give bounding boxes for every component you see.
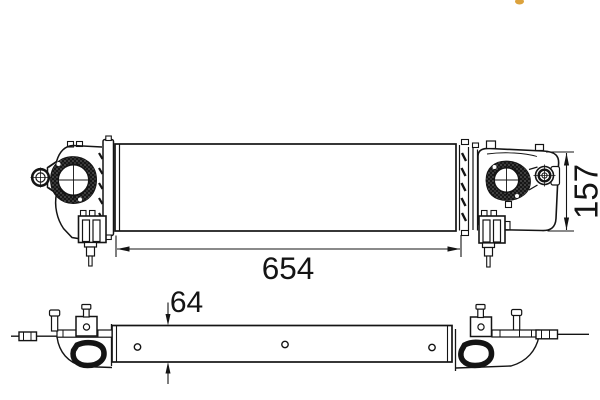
front-view: 654 157 bbox=[31, 136, 600, 286]
left-flange-bolt-notch-a bbox=[57, 162, 61, 166]
right-tank-top-tab-a bbox=[462, 140, 469, 145]
right-pin-b-body bbox=[514, 315, 520, 332]
left-tank-top-tab bbox=[106, 136, 112, 141]
left-rod-coupler bbox=[19, 332, 37, 341]
right-bracket-top bbox=[456, 305, 589, 369]
height-dimension-label: 157 bbox=[568, 164, 600, 219]
core-body bbox=[115, 144, 456, 231]
left-flange-bolt-notch-b bbox=[78, 198, 82, 202]
top-view: 64 bbox=[11, 286, 589, 384]
technical-drawing-page: 654 157 bbox=[0, 0, 600, 400]
intercooler-drawing: 654 157 bbox=[0, 0, 600, 400]
depth-dimension-label: 64 bbox=[170, 286, 203, 319]
right-end-tank bbox=[460, 140, 479, 236]
mounting-hole-right bbox=[429, 344, 435, 350]
width-dimension-label: 654 bbox=[262, 250, 315, 286]
left-lower-mount bbox=[79, 211, 107, 267]
right-bracket-tab-a bbox=[487, 141, 496, 149]
right-pin-flange bbox=[483, 243, 495, 248]
left-pin-body bbox=[87, 247, 95, 256]
right-tank-top-tab-b bbox=[473, 143, 479, 148]
left-pin-a-cap bbox=[50, 310, 60, 316]
right-air-duct-opening bbox=[461, 342, 492, 365]
mounting-hole-center bbox=[282, 341, 288, 347]
left-air-duct-opening bbox=[73, 343, 104, 366]
right-lower-mount bbox=[479, 211, 510, 268]
depth-arrowhead-bottom bbox=[166, 362, 171, 374]
right-flange-bolt-notch-b bbox=[515, 194, 519, 198]
right-pin-a-cap bbox=[476, 305, 485, 310]
right-tank-hatching bbox=[462, 153, 467, 221]
mounting-hole-left bbox=[134, 344, 140, 350]
left-inlet-flange bbox=[50, 156, 96, 203]
left-pin-flange bbox=[85, 243, 97, 248]
right-tank-lines bbox=[460, 145, 478, 231]
right-pin-body bbox=[485, 248, 493, 257]
right-tank-bottom-tab bbox=[462, 231, 469, 236]
right-flange-bolt-notch-a bbox=[493, 165, 497, 169]
left-mount-pin bbox=[89, 256, 92, 266]
left-bracket-top bbox=[11, 305, 112, 368]
width-dimension: 654 bbox=[116, 235, 461, 286]
right-mount-pin bbox=[487, 256, 490, 267]
right-mount-block-top bbox=[471, 317, 492, 337]
right-pin-b-cap bbox=[512, 310, 522, 316]
left-mount-block-top bbox=[76, 317, 97, 337]
left-pin-a-body bbox=[52, 315, 58, 331]
right-bracket-tab-b bbox=[536, 145, 544, 151]
watermark-dot bbox=[515, 0, 524, 5]
left-pin-b-cap bbox=[82, 305, 91, 310]
left-bracket-hatching bbox=[99, 153, 103, 219]
right-rod-coupler bbox=[536, 330, 558, 339]
